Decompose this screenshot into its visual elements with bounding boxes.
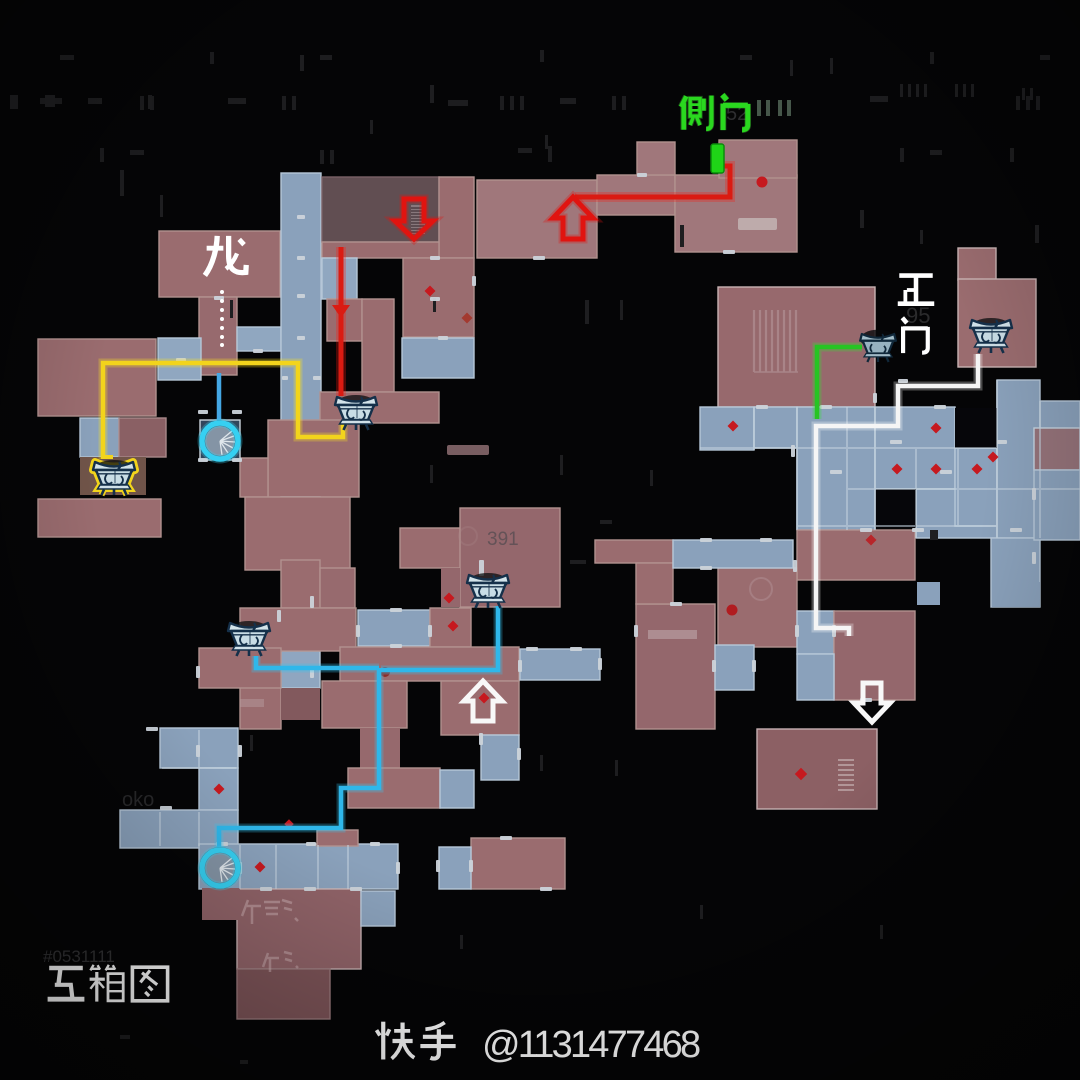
svg-text:95: 95 (906, 303, 930, 328)
svg-text:@1131477468: @1131477468 (482, 1024, 700, 1066)
svg-text:#0531111: #0531111 (43, 947, 115, 966)
svg-text:391: 391 (487, 529, 519, 550)
svg-text:oko: oko (122, 789, 154, 811)
